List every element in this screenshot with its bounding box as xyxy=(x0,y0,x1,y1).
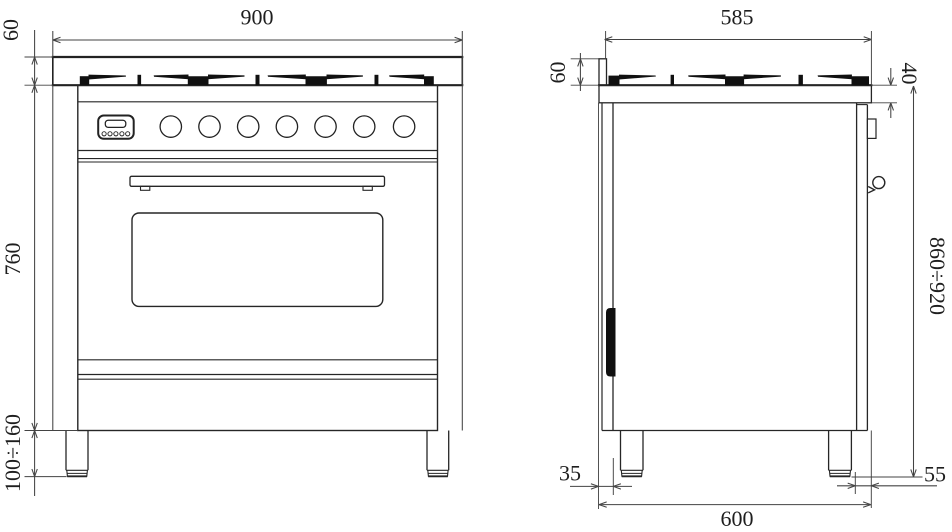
svg-text:60: 60 xyxy=(545,62,570,84)
svg-text:900: 900 xyxy=(241,5,274,30)
svg-text:585: 585 xyxy=(721,5,754,30)
svg-text:600: 600 xyxy=(721,506,754,531)
svg-text:55: 55 xyxy=(924,462,946,487)
svg-text:40: 40 xyxy=(897,63,922,85)
svg-text:35: 35 xyxy=(559,461,581,486)
svg-text:100÷160: 100÷160 xyxy=(0,414,25,492)
svg-text:860÷920: 860÷920 xyxy=(925,237,950,315)
svg-text:60: 60 xyxy=(0,19,23,41)
svg-text:760: 760 xyxy=(0,243,25,276)
